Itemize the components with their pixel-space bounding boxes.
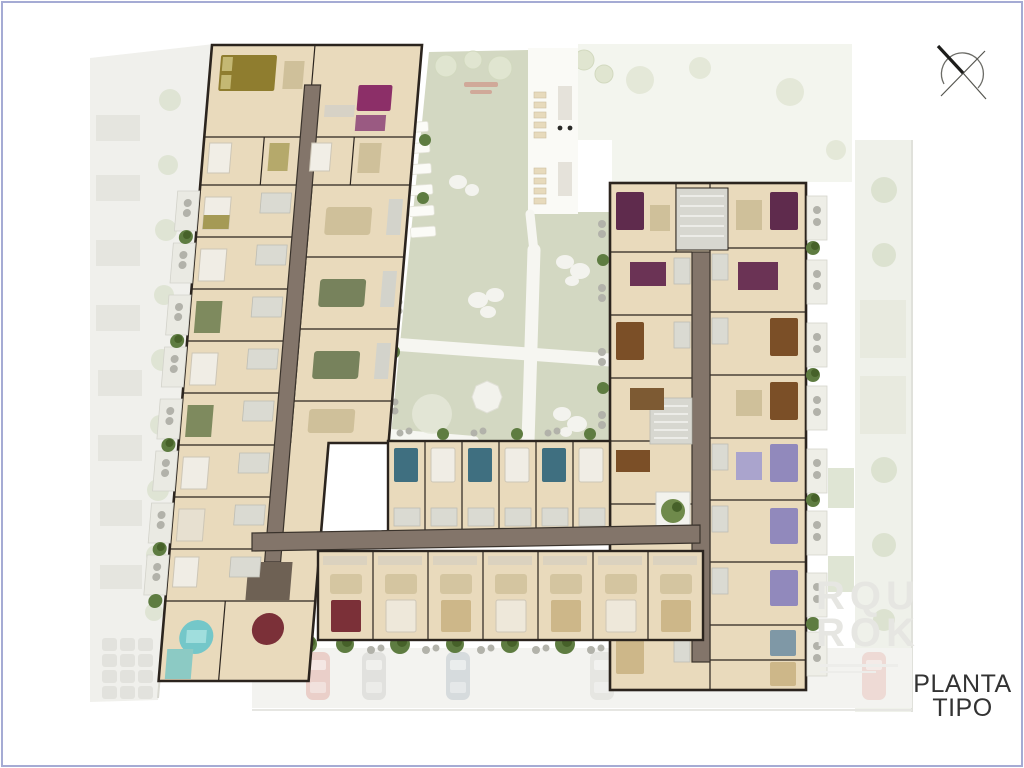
parked-car	[362, 652, 386, 700]
context-building	[860, 376, 906, 434]
pool-deck	[528, 48, 578, 214]
bed	[441, 600, 471, 632]
bed	[661, 600, 691, 632]
bed	[496, 600, 526, 632]
rug	[650, 205, 670, 231]
bed	[468, 448, 492, 482]
watermark-smallprint	[820, 664, 898, 667]
blanket	[203, 215, 230, 229]
bed	[386, 600, 416, 632]
bed	[267, 143, 289, 171]
pillow	[220, 75, 231, 89]
title-line1: PLANTA	[905, 672, 1020, 696]
compass-icon	[930, 40, 996, 110]
floor-plan-page: RQU ROK PLANTA TIPO	[0, 0, 1024, 768]
rug	[630, 262, 666, 286]
bed	[505, 448, 529, 482]
bed	[176, 509, 205, 541]
context-lawn	[578, 44, 852, 182]
bed	[309, 143, 331, 171]
bed	[770, 382, 798, 420]
watermark-line2: ROK	[816, 615, 920, 652]
bed	[579, 448, 603, 482]
bed	[770, 318, 798, 356]
palm-tree	[412, 394, 452, 434]
bed	[770, 444, 798, 482]
bed	[181, 457, 210, 489]
bed	[165, 649, 194, 679]
bed	[770, 508, 798, 544]
stair-core	[676, 188, 728, 250]
rug	[736, 452, 762, 480]
bed	[189, 353, 218, 385]
rug	[307, 409, 355, 433]
rug	[736, 390, 762, 416]
bed	[606, 600, 636, 632]
rug	[736, 200, 762, 230]
garden-patch	[828, 468, 854, 508]
title-line2: TIPO	[905, 696, 1020, 720]
context-top-right	[578, 44, 852, 182]
sofa	[324, 105, 355, 117]
bed	[616, 450, 650, 472]
bed	[394, 448, 418, 482]
bed	[207, 143, 232, 173]
parked-car	[446, 652, 470, 700]
gazebo	[472, 381, 502, 413]
bed	[616, 640, 644, 674]
bed	[185, 405, 214, 437]
context-building	[860, 300, 906, 358]
bed	[431, 448, 455, 482]
bed	[551, 600, 581, 632]
bed	[616, 192, 644, 230]
rug	[318, 279, 366, 307]
page-title: PLANTA TIPO	[905, 672, 1020, 720]
bed	[331, 600, 361, 632]
rug	[355, 115, 386, 131]
rug-table	[186, 630, 207, 643]
lightwell	[656, 492, 690, 530]
rug	[738, 262, 778, 290]
rug	[312, 351, 360, 379]
watermark-line1: RQU	[816, 578, 920, 615]
bed	[194, 301, 223, 333]
parked-car	[862, 652, 886, 700]
pillow	[222, 57, 233, 71]
rug	[630, 388, 664, 410]
bed	[770, 570, 798, 606]
bed	[357, 143, 382, 173]
bed	[770, 630, 796, 656]
rug	[324, 207, 372, 235]
watermark: RQU ROK	[816, 578, 920, 652]
bed	[616, 322, 644, 360]
bed	[770, 192, 798, 230]
rug	[282, 61, 304, 89]
bed	[356, 85, 392, 111]
bed	[198, 249, 227, 281]
watermark-smallprint	[820, 671, 876, 673]
bed	[770, 662, 796, 686]
bed	[172, 557, 199, 587]
bed	[542, 448, 566, 482]
